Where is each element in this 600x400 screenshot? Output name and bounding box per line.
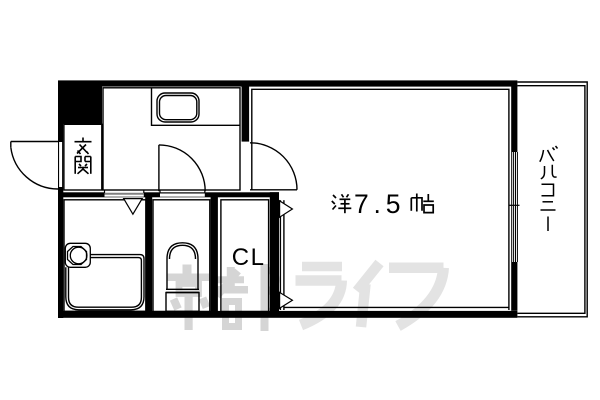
svg-text:CL: CL bbox=[232, 244, 266, 271]
svg-text:7.5: 7.5 bbox=[354, 189, 405, 219]
